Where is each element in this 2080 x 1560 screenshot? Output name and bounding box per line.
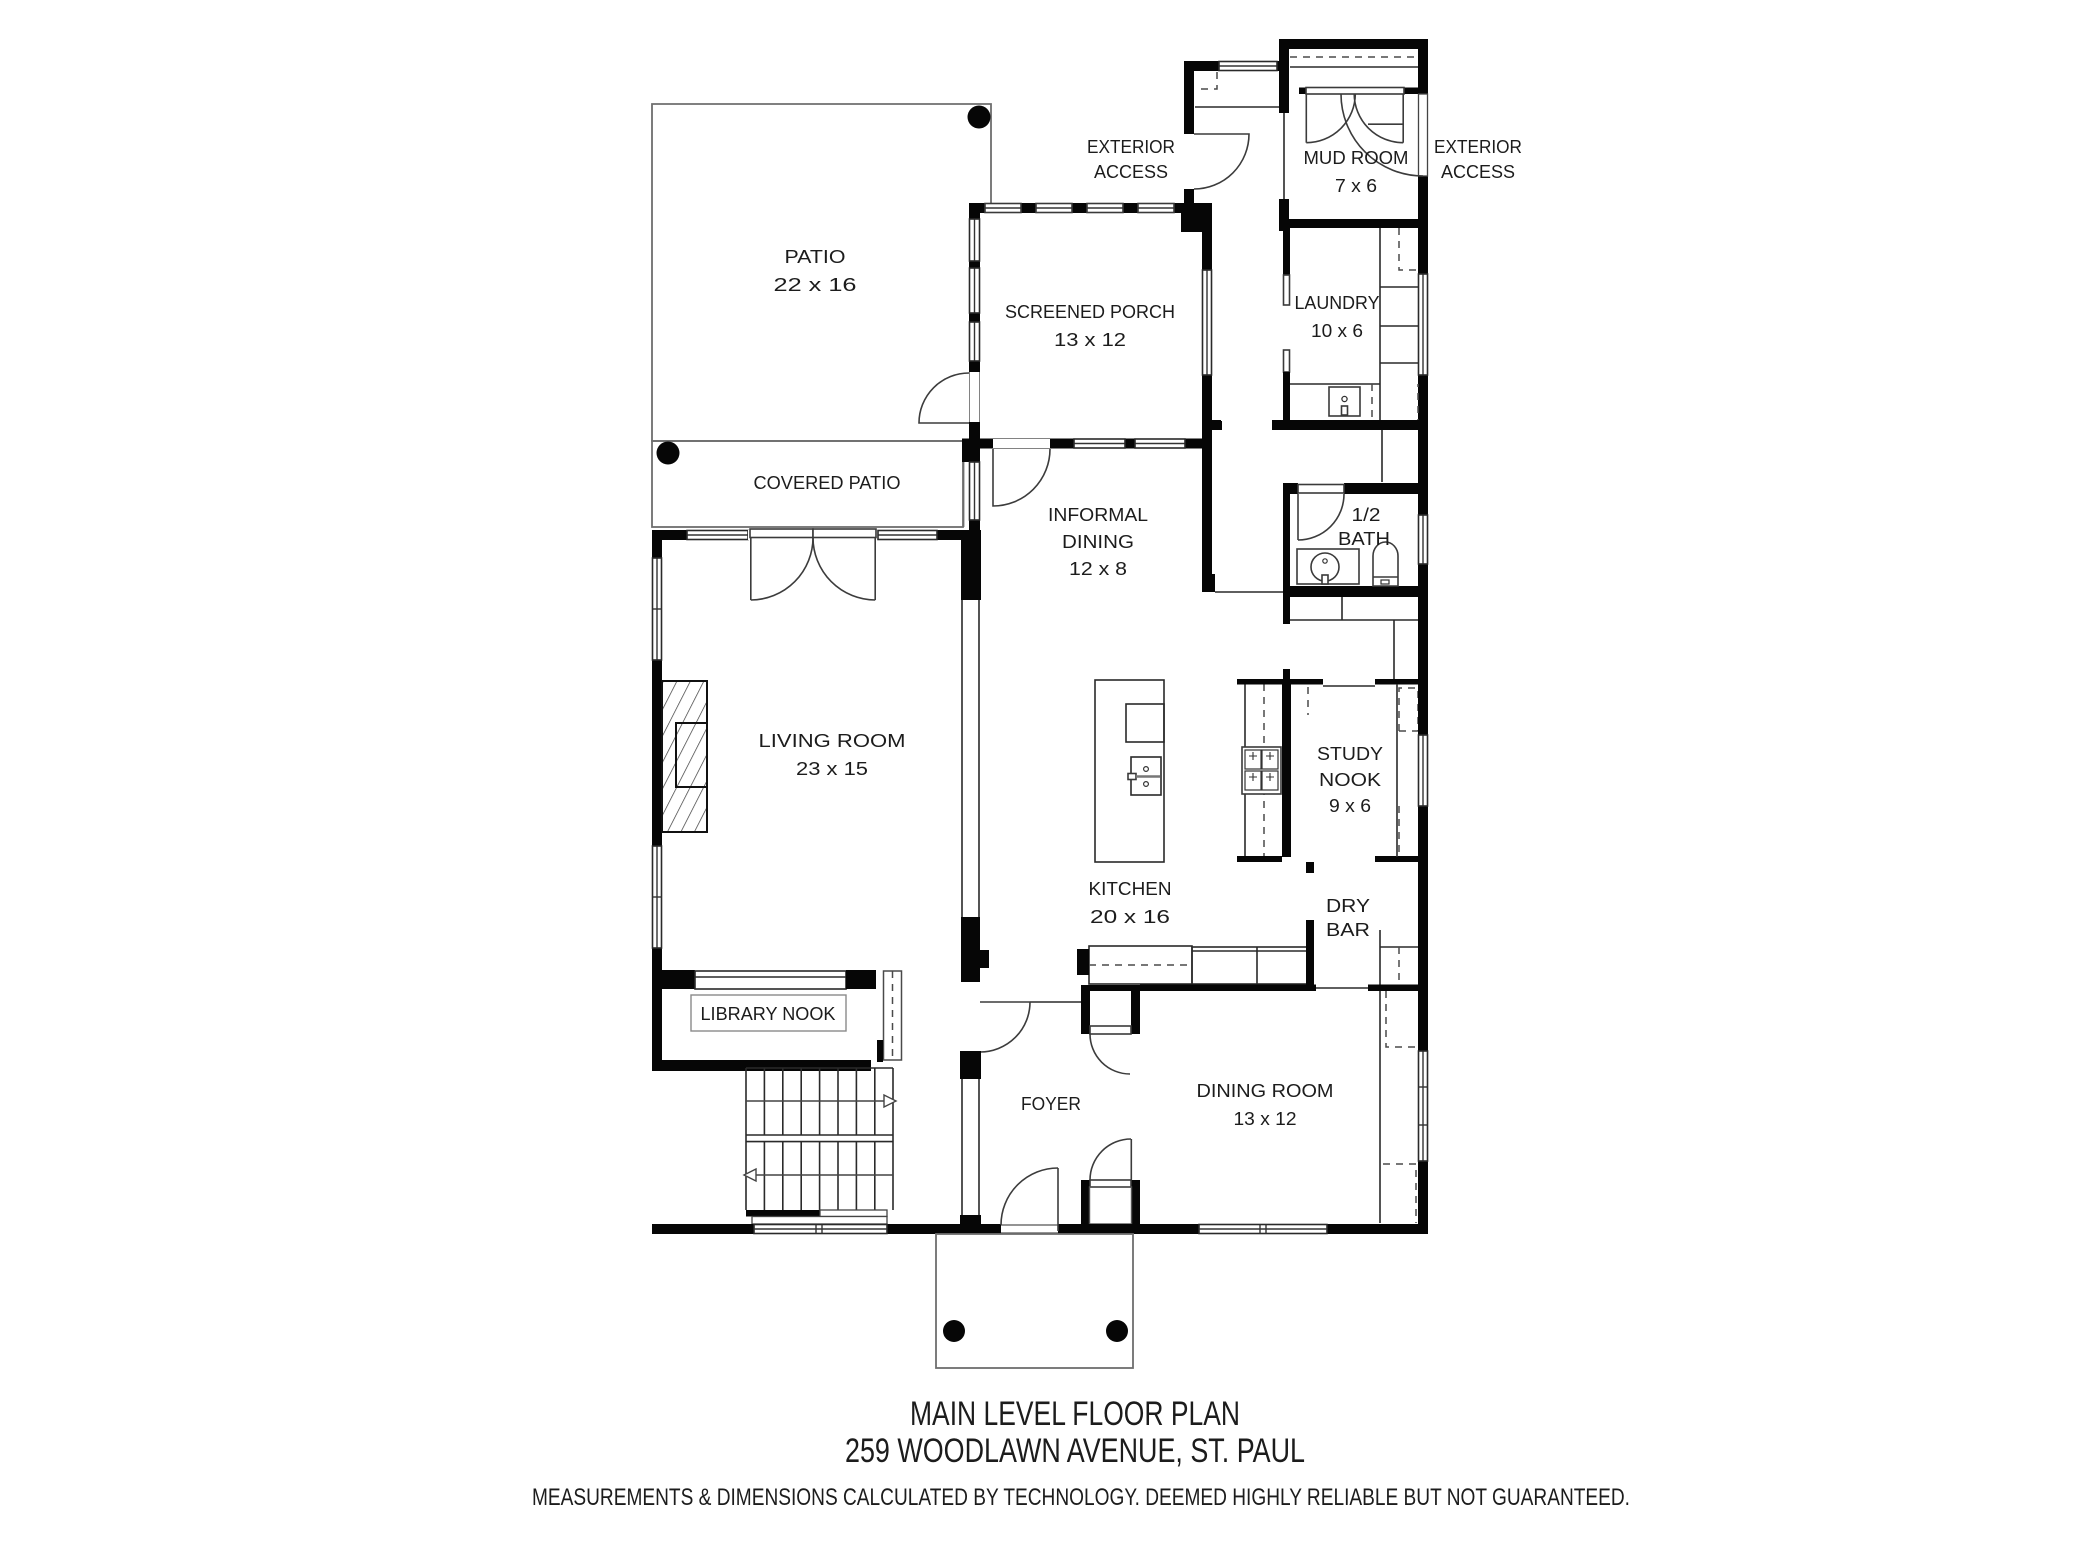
- svg-text:DINING ROOM: DINING ROOM: [1197, 1080, 1334, 1101]
- svg-text:KITCHEN: KITCHEN: [1089, 878, 1172, 899]
- svg-text:COVERED PATIO: COVERED PATIO: [754, 472, 901, 493]
- svg-text:20 x 16: 20 x 16: [1090, 906, 1170, 927]
- svg-text:MUD ROOM: MUD ROOM: [1304, 147, 1409, 168]
- svg-text:BATH: BATH: [1338, 528, 1390, 549]
- svg-text:9 x 6: 9 x 6: [1329, 795, 1371, 816]
- svg-text:FOYER: FOYER: [1021, 1093, 1081, 1114]
- svg-text:1/2: 1/2: [1352, 504, 1381, 525]
- svg-text:10 x 6: 10 x 6: [1311, 320, 1363, 341]
- svg-text:ACCESS: ACCESS: [1441, 161, 1515, 182]
- svg-text:DINING: DINING: [1062, 531, 1134, 552]
- svg-text:EXTERIOR: EXTERIOR: [1434, 136, 1522, 157]
- svg-text:LIBRARY NOOK: LIBRARY NOOK: [701, 1003, 837, 1024]
- svg-text:INFORMAL: INFORMAL: [1048, 504, 1148, 525]
- svg-text:13 x 12: 13 x 12: [1234, 1108, 1297, 1129]
- svg-text:LIVING ROOM: LIVING ROOM: [759, 730, 906, 751]
- svg-text:23 x 15: 23 x 15: [796, 758, 868, 779]
- svg-text:259 WOODLAWN AVENUE, ST. PAUL: 259 WOODLAWN AVENUE, ST. PAUL: [845, 1432, 1305, 1470]
- svg-text:LAUNDRY: LAUNDRY: [1295, 292, 1380, 313]
- svg-text:7 x 6: 7 x 6: [1335, 175, 1377, 196]
- svg-text:STUDY: STUDY: [1317, 743, 1383, 764]
- svg-text:ACCESS: ACCESS: [1094, 161, 1168, 182]
- svg-text:BAR: BAR: [1326, 919, 1370, 940]
- svg-text:NOOK: NOOK: [1319, 769, 1382, 790]
- svg-text:DRY: DRY: [1326, 895, 1370, 916]
- svg-text:PATIO: PATIO: [785, 246, 846, 267]
- svg-text:MEASUREMENTS & DIMENSIONS CALC: MEASUREMENTS & DIMENSIONS CALCULATED BY …: [532, 1484, 1630, 1511]
- svg-text:EXTERIOR: EXTERIOR: [1087, 136, 1175, 157]
- svg-text:12 x 8: 12 x 8: [1069, 558, 1127, 579]
- svg-text:13 x 12: 13 x 12: [1054, 329, 1126, 350]
- svg-text:MAIN LEVEL FLOOR PLAN: MAIN LEVEL FLOOR PLAN: [910, 1395, 1240, 1433]
- svg-text:22 x 16: 22 x 16: [774, 274, 857, 295]
- svg-text:SCREENED PORCH: SCREENED PORCH: [1005, 301, 1175, 322]
